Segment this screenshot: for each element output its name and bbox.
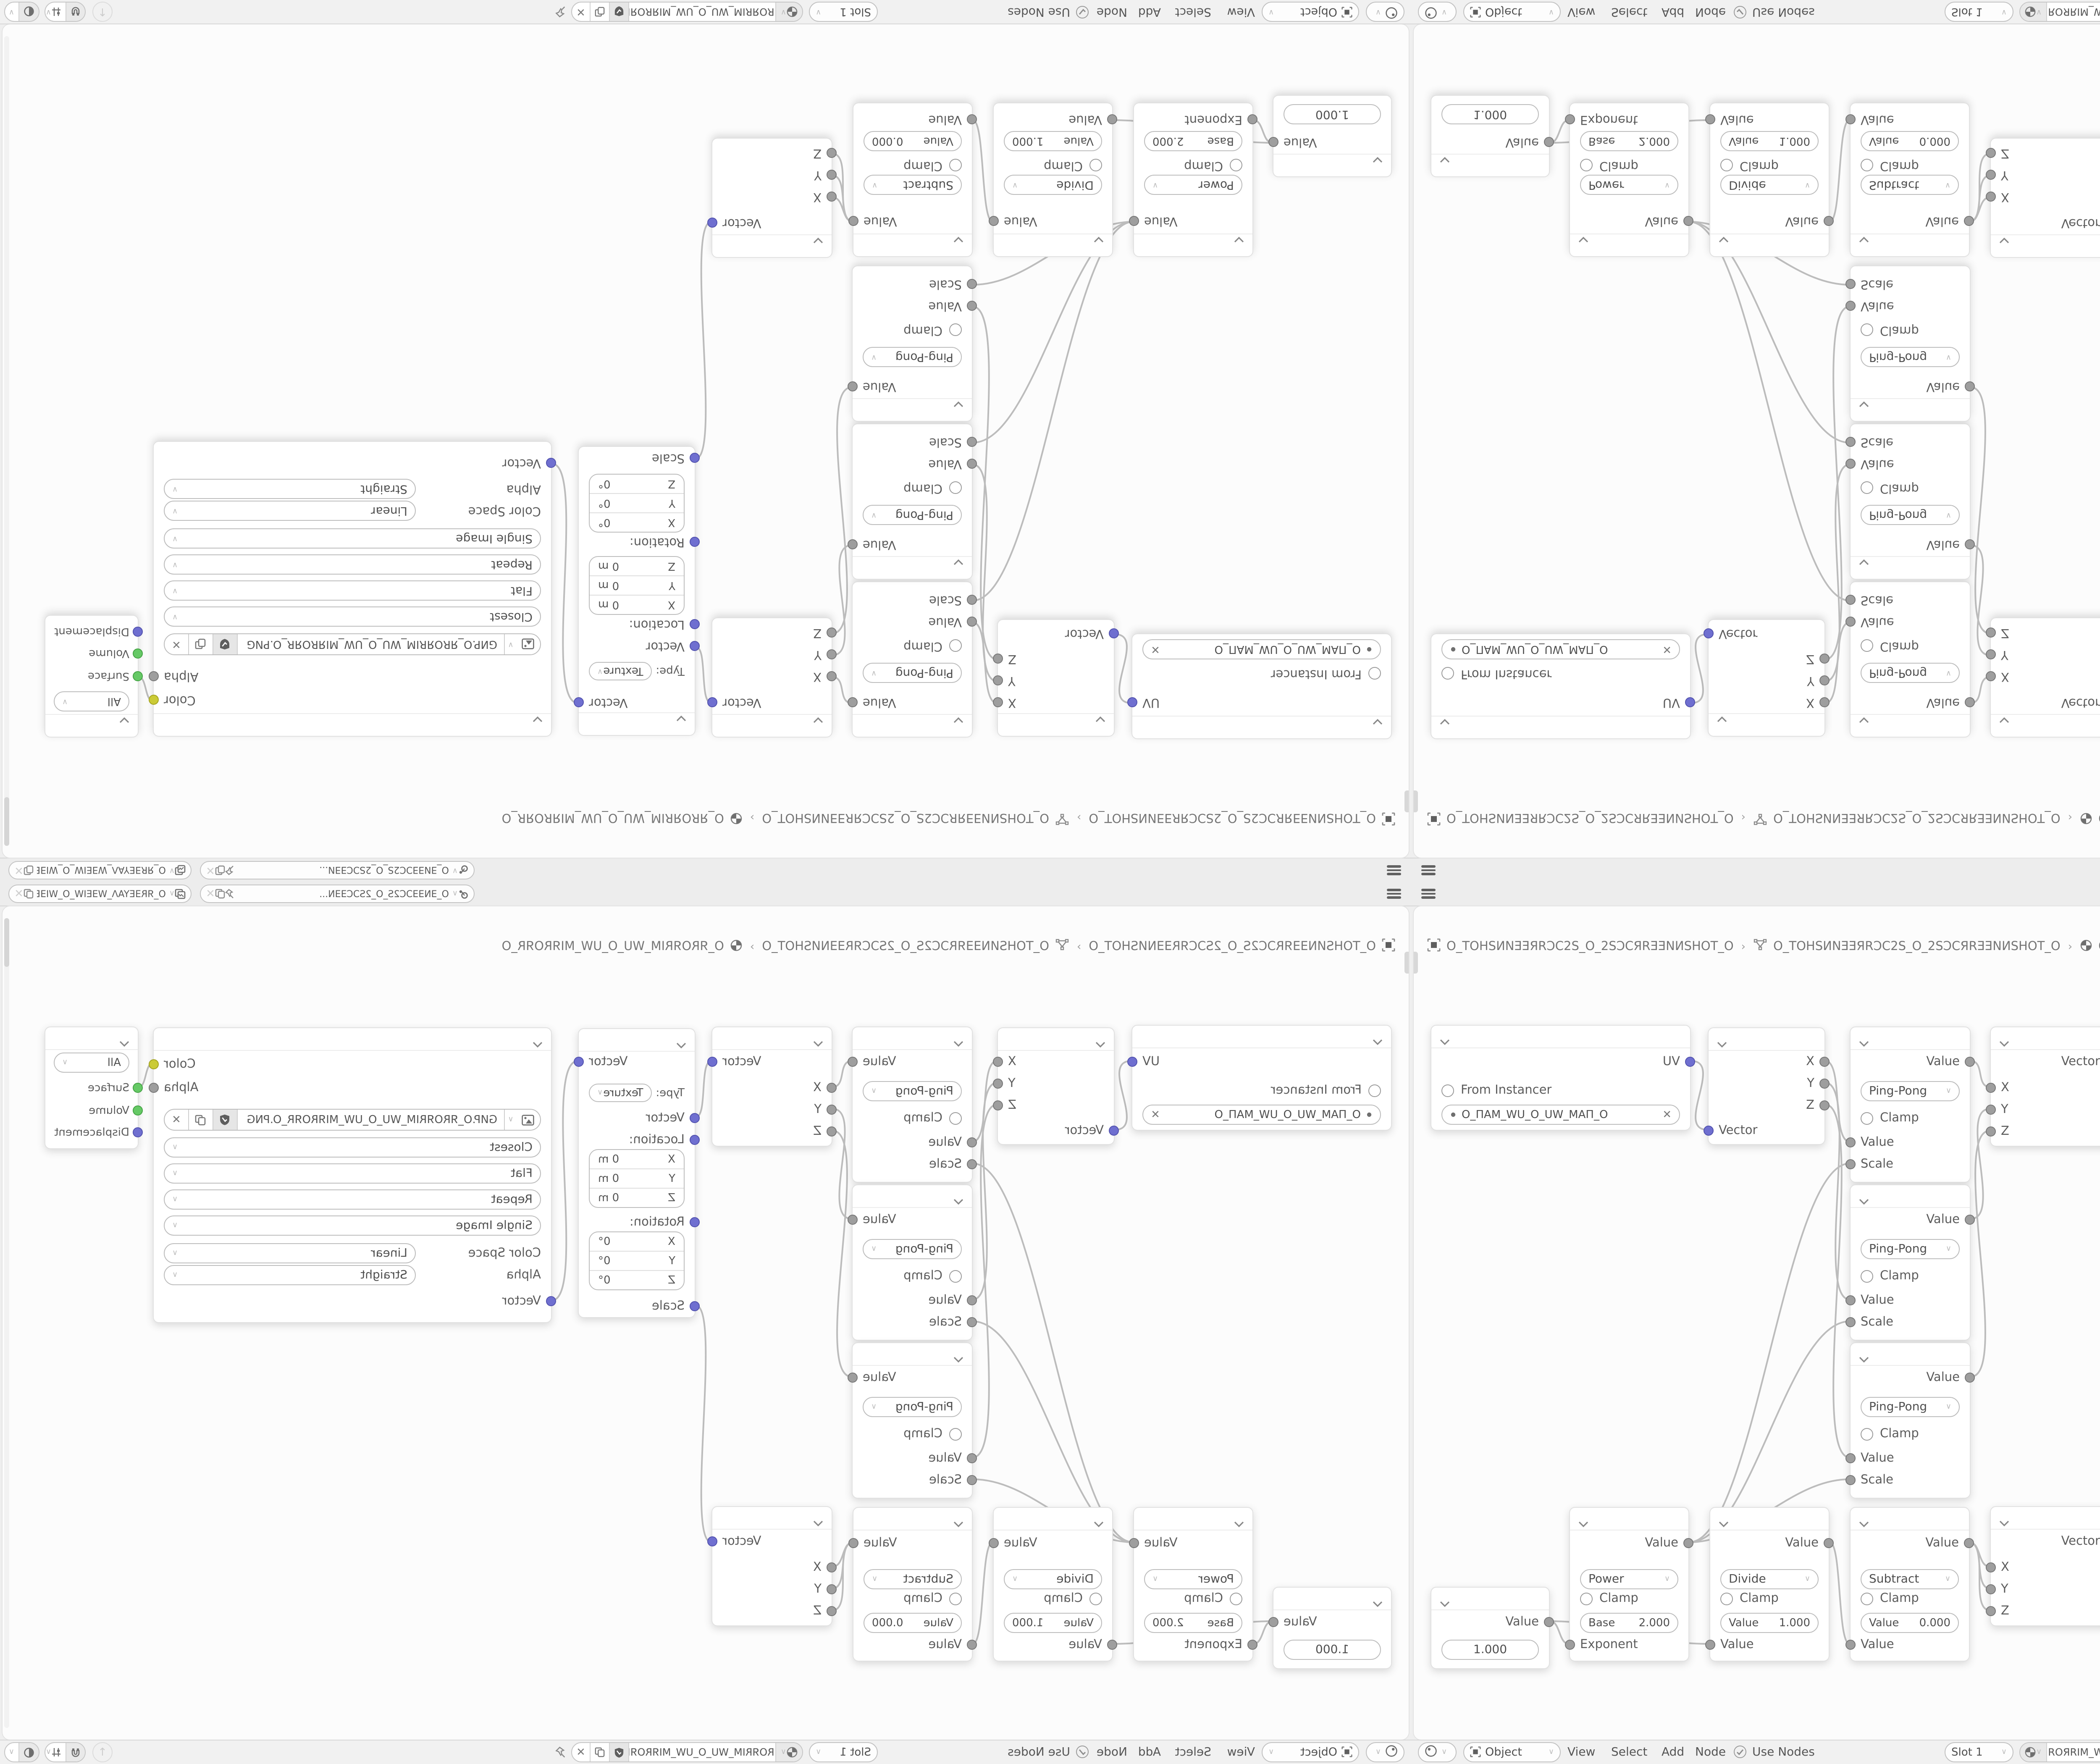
socket-exponent-in[interactable] <box>1247 1640 1257 1650</box>
node-math-power[interactable]: Value Power∨ Clamp Base 2.000 Exponent <box>1133 102 1253 257</box>
close-icon[interactable]: ✕ <box>1151 1108 1160 1121</box>
material-selector[interactable]: ∨ O_ЯROЯRIM_WU_O_UW_MIЯROЯR_O ✕ <box>2019 2 2100 22</box>
collapse-chevron-icon[interactable] <box>1373 1595 1383 1611</box>
socket-scale-in[interactable] <box>967 1475 977 1485</box>
base-field[interactable]: Base 2.000 <box>1580 131 1678 151</box>
node-math-pingpong-1[interactable]: Value Ping-Pong∨ Clamp Value Scale <box>1850 581 1971 738</box>
gizmo-up-arrow-button[interactable]: ↑ <box>92 1742 113 1762</box>
node-combine-xyz-bottom[interactable]: Vector X Y Z <box>1990 1506 2100 1626</box>
view-layer-selector[interactable]: ∨ O_ЯRƎEYAΛ_WƎEIW_O_WIƎEW_ΛAYƎER_O ✕ <box>8 861 192 879</box>
socket-z-out[interactable] <box>1819 1100 1830 1110</box>
socket-exponent-in[interactable] <box>1247 114 1257 124</box>
collapse-chevron-icon[interactable] <box>1440 715 1450 731</box>
node-math-power[interactable]: Value Power∨ Clamp Base 2.000 Exponent <box>1133 1507 1253 1662</box>
socket-y-in[interactable] <box>827 170 837 180</box>
socket-vector-out[interactable] <box>707 1057 717 1067</box>
clamp-checkbox[interactable] <box>1861 482 1873 494</box>
operation-dropdown[interactable]: Divide∨ <box>1004 1569 1102 1589</box>
socket-z-in[interactable] <box>1986 1606 1996 1616</box>
collapse-chevron-icon[interactable] <box>1859 233 1869 249</box>
duplicate-icon[interactable] <box>24 865 34 875</box>
node-math-subtract[interactable]: Value Subtract∨ Clamp Value 0.000 Value <box>853 102 973 257</box>
socket-value-out[interactable] <box>1964 216 1974 226</box>
socket-x-in[interactable] <box>1986 1083 1996 1093</box>
collapse-chevron-icon[interactable] <box>953 1035 963 1051</box>
menu-select[interactable]: Select <box>1175 1746 1211 1759</box>
material-selector[interactable]: ∨ O_ЯROЯRIM_WU_O_UW_MIЯROЯR_O ✕ <box>571 1742 803 1762</box>
socket-displacement-in[interactable] <box>133 627 143 637</box>
editor-type-dropdown[interactable]: ∨ <box>1366 1742 1404 1762</box>
socket-value-out[interactable] <box>848 697 858 707</box>
node-combine-xyz-top[interactable]: Vector X Y Z <box>711 1026 832 1147</box>
socket-vector-in[interactable] <box>546 1296 556 1306</box>
use-nodes-checkbox[interactable] <box>1076 6 1089 18</box>
socket-x-in[interactable] <box>827 1562 837 1572</box>
socket-value-in[interactable] <box>967 1137 977 1147</box>
socket-x-in[interactable] <box>827 192 837 202</box>
node-math-pingpong-3[interactable]: Value Ping-Pong∨ Clamp Value Scale <box>1850 1342 1971 1499</box>
node-value[interactable]: Value 1.000 <box>1273 95 1392 177</box>
node-uv-map[interactable]: UV From Instancer O_ΠAM_WU_O_UW_MAΠ_O ✕ <box>1431 633 1691 739</box>
socket-value-out[interactable] <box>848 1057 858 1067</box>
unlink-icon[interactable]: ✕ <box>206 887 215 900</box>
socket-x-in[interactable] <box>1986 192 1996 202</box>
clamp-checkbox[interactable] <box>1861 640 1873 652</box>
socket-z-in[interactable] <box>827 1606 837 1616</box>
extension-dropdown[interactable]: Repeat∨ <box>164 554 541 575</box>
snap-settings-icon[interactable]: ∨ <box>45 1743 66 1761</box>
collapse-chevron-icon[interactable] <box>1373 1033 1383 1049</box>
menu-icon[interactable] <box>1421 889 1436 899</box>
socket-value-out[interactable] <box>1683 1538 1693 1548</box>
collapse-chevron-icon[interactable] <box>953 713 963 729</box>
menu-select[interactable]: Select <box>1611 5 1647 18</box>
breadcrumb-mesh[interactable]: O_TOHSИNƎƎЯRƆC2S_O_2SƆCЯRƎƎNИSHOT_O <box>1773 811 2061 824</box>
operation-dropdown[interactable]: Ping-Pong∨ <box>1861 1081 1960 1101</box>
node-math-pingpong-3[interactable]: Value Ping-Pong∨ Clamp Value Scale <box>852 265 973 422</box>
socket-vector-in[interactable] <box>1109 628 1119 638</box>
breadcrumb-object[interactable]: O_TOHSИNƎƎЯRƆC2S_O_2SƆCЯRƎƎNИSHOT_O <box>1446 811 1734 824</box>
socket-value-in[interactable] <box>1845 459 1856 469</box>
socket-uv-out[interactable] <box>1127 697 1137 707</box>
from-instancer-checkbox[interactable] <box>1368 1084 1381 1097</box>
breadcrumb-object[interactable]: O_TOHSИNƎƎЯRƆC2S_O_2SƆCЯRƎƎNИSHOT_O <box>1089 811 1376 824</box>
socket-value-in[interactable] <box>1845 1453 1856 1463</box>
socket-value-out[interactable] <box>1129 216 1139 226</box>
socket-vector-out[interactable] <box>707 218 717 228</box>
node-separate-xyz[interactable]: X Y Z Vector <box>997 619 1115 737</box>
node-math-divide[interactable]: Value Divide∨ Clamp Value 1.000 Value <box>1709 1507 1830 1662</box>
value-field[interactable]: Value 0.000 <box>864 131 962 151</box>
node-material-output[interactable]: All∨ Surface Volume Displacement <box>45 1026 139 1149</box>
node-combine-xyz-top[interactable]: Vector X Y Z <box>711 617 832 738</box>
node-math-pingpong-2[interactable]: Value Ping-Pong∨ Clamp Value Scale <box>1850 423 1971 580</box>
unlink-icon[interactable]: ✕ <box>165 1110 189 1130</box>
rotation-fields[interactable]: X0° Y0° Z0° <box>589 474 685 533</box>
socket-value-in[interactable] <box>967 114 977 124</box>
menu-node[interactable]: Node <box>1695 5 1726 18</box>
node-math-pingpong-2[interactable]: Value Ping-Pong∨ Clamp Value Scale <box>1850 1184 1971 1341</box>
area-edge-handle[interactable] <box>1404 790 1409 812</box>
collapse-chevron-icon[interactable] <box>813 1035 823 1051</box>
socket-value-out[interactable] <box>1544 1617 1554 1627</box>
menu-add[interactable]: Add <box>1138 5 1161 18</box>
collapse-chevron-icon[interactable] <box>953 233 963 249</box>
breadcrumb-material[interactable]: O_ЯROЯRIM_WU_O_UW_MIЯROЯR_O <box>2098 940 2100 953</box>
socket-scale-in[interactable] <box>1845 1159 1856 1169</box>
close-icon[interactable]: ✕ <box>1662 1108 1672 1121</box>
socket-y-in[interactable] <box>1986 649 1996 659</box>
clamp-checkbox[interactable] <box>1089 1592 1102 1605</box>
chevron-down-icon[interactable]: ∨ <box>505 634 517 654</box>
socket-rotation-in[interactable] <box>690 1217 700 1227</box>
socket-value-out[interactable] <box>1965 1057 1975 1067</box>
socket-value-out[interactable] <box>1964 1538 1974 1548</box>
chevron-down-icon[interactable]: ∨ <box>5 3 19 21</box>
value-field[interactable]: 1.000 <box>1441 1640 1539 1660</box>
image-icon[interactable] <box>517 634 540 654</box>
socket-x-in[interactable] <box>827 1083 837 1093</box>
base-field[interactable]: Base 2.000 <box>1580 1613 1678 1633</box>
socket-vector-out[interactable] <box>707 697 717 707</box>
use-nodes-checkbox[interactable] <box>1076 1746 1089 1758</box>
socket-vector-in[interactable] <box>1704 628 1714 638</box>
overlays-toggle[interactable]: ∨ <box>4 2 39 22</box>
socket-x-out[interactable] <box>1819 1057 1830 1067</box>
operation-dropdown[interactable]: Ping-Pong∨ <box>863 1081 962 1101</box>
pin-icon[interactable] <box>555 1746 566 1761</box>
collapse-chevron-icon[interactable] <box>1859 1515 1869 1531</box>
unlink-icon[interactable]: ✕ <box>14 864 24 877</box>
socket-value-in[interactable] <box>1845 1640 1856 1650</box>
collapse-chevron-icon[interactable] <box>1373 153 1383 169</box>
breadcrumb-mesh[interactable]: O_TOHSИNƎƎЯRƆC2S_O_2SƆCЯRƎƎNИSHOT_O <box>762 811 1049 824</box>
collapse-chevron-icon[interactable] <box>1859 1035 1869 1051</box>
socket-value-in[interactable] <box>967 301 977 311</box>
operation-dropdown[interactable]: Divide∨ <box>1720 1569 1819 1589</box>
socket-value-in[interactable] <box>1845 1137 1856 1147</box>
color-space-dropdown[interactable]: Linear∨ <box>164 1243 416 1263</box>
uv-map-field[interactable]: O_ΠAM_WU_O_UW_MAΠ_O ✕ <box>1142 1105 1381 1125</box>
editor-type-dropdown[interactable]: ∨ <box>1418 1742 1457 1762</box>
slot-dropdown[interactable]: Slot 1 ∨ <box>809 2 878 22</box>
node-combine-xyz-top[interactable]: Vector X Y Z <box>1990 1026 2100 1147</box>
view-layer-selector[interactable]: ∨ O_ЯRƎEYAΛ_WƎEIW_O_WIƎEW_ΛAYƎER_O ✕ <box>8 885 192 903</box>
duplicate-icon[interactable] <box>215 889 225 899</box>
pin-icon[interactable] <box>555 3 566 18</box>
socket-y-in[interactable] <box>1986 1105 1996 1115</box>
close-icon[interactable]: ✕ <box>1662 643 1672 656</box>
pin-icon[interactable] <box>225 889 234 899</box>
snapping-controls[interactable]: ∨ <box>45 2 86 22</box>
operation-dropdown[interactable]: Power∨ <box>1144 175 1242 195</box>
socket-vector-out[interactable] <box>574 697 584 707</box>
socket-y-in[interactable] <box>827 649 837 659</box>
node-math-pingpong-1[interactable]: Value Ping-Pong∨ Clamp Value Scale <box>852 1026 973 1183</box>
pin-icon[interactable] <box>225 865 234 875</box>
node-canvas[interactable]: O_TOHSИNƎƎЯRƆC2S_O_2SƆCЯRƎƎNИSHOT_O › O_… <box>1413 906 2100 1740</box>
node-math-divide[interactable]: Value Divide∨ Clamp Value 1.000 Value <box>993 102 1113 257</box>
collapse-chevron-icon[interactable] <box>1578 233 1588 249</box>
socket-x-out[interactable] <box>993 1057 1003 1067</box>
socket-value-out[interactable] <box>1965 539 1975 549</box>
duplicate-icon[interactable] <box>189 1110 213 1130</box>
shader-mode-dropdown[interactable]: Object ∨ <box>1463 1742 1561 1762</box>
scrollbar-track[interactable] <box>4 918 9 1728</box>
duplicate-icon[interactable] <box>24 889 34 899</box>
socket-scale-in[interactable] <box>967 279 977 289</box>
node-uv-map[interactable]: UV From Instancer O_ΠAM_WU_O_UW_MAΠ_O ✕ <box>1131 1025 1392 1131</box>
socket-vector-out[interactable] <box>707 1536 717 1546</box>
editor-type-dropdown[interactable]: ∨ <box>1418 2 1457 22</box>
node-math-subtract[interactable]: Value Subtract∨ Clamp Value 0.000 Value <box>1850 102 1970 257</box>
node-math-pingpong-2[interactable]: Value Ping-Pong∨ Clamp Value Scale <box>852 423 973 580</box>
operation-dropdown[interactable]: Ping-Pong∨ <box>863 1397 962 1417</box>
alpha-mode-dropdown[interactable]: Straight∨ <box>164 1265 416 1285</box>
socket-uv-out[interactable] <box>1127 1057 1137 1067</box>
collapse-chevron-icon[interactable] <box>119 1035 129 1051</box>
node-value[interactable]: Value 1.000 <box>1431 95 1550 177</box>
value-field[interactable]: Value 0.000 <box>1861 131 1959 151</box>
node-image-texture[interactable]: Color Alpha ∨ GИP.O_ЯROЯRIM_WU_O_UW_MIЯR… <box>153 441 552 737</box>
operation-dropdown[interactable]: Ping-Pong∨ <box>1861 505 1960 525</box>
collapse-chevron-icon[interactable] <box>1719 1515 1729 1531</box>
socket-uv-out[interactable] <box>1685 1057 1695 1067</box>
operation-dropdown[interactable]: Ping-Pong∨ <box>1861 1397 1960 1417</box>
collapse-chevron-icon[interactable] <box>1234 1515 1244 1531</box>
duplicate-icon[interactable] <box>591 3 610 21</box>
socket-displacement-in[interactable] <box>133 1127 143 1137</box>
socket-y-out[interactable] <box>1819 675 1830 685</box>
socket-vector-in[interactable] <box>690 641 700 651</box>
socket-value-in[interactable] <box>1845 301 1856 311</box>
clamp-checkbox[interactable] <box>949 1428 962 1440</box>
collapse-chevron-icon[interactable] <box>1859 1351 1869 1367</box>
slot-dropdown[interactable]: Slot 1 ∨ <box>809 1742 878 1762</box>
node-separate-xyz[interactable]: X Y Z Vector <box>997 1027 1115 1145</box>
socket-value-in[interactable] <box>967 459 977 469</box>
clamp-checkbox[interactable] <box>949 324 962 336</box>
scrollbar-track[interactable] <box>4 36 9 846</box>
clamp-checkbox[interactable] <box>949 1112 962 1124</box>
socket-value-out[interactable] <box>848 1215 858 1225</box>
collapse-chevron-icon[interactable] <box>953 1193 963 1209</box>
socket-location-in[interactable] <box>690 619 700 629</box>
socket-value-out[interactable] <box>1824 1538 1834 1548</box>
socket-vector-in[interactable] <box>1704 1126 1714 1136</box>
socket-value-out[interactable] <box>848 539 858 549</box>
scrollbar-thumb[interactable] <box>4 918 9 967</box>
collapse-chevron-icon[interactable] <box>676 1037 686 1053</box>
socket-vector-in[interactable] <box>690 1113 700 1123</box>
socket-scale-in[interactable] <box>1845 1317 1856 1327</box>
from-instancer-checkbox[interactable] <box>1368 667 1381 680</box>
socket-value-out[interactable] <box>1129 1538 1139 1548</box>
menu-view[interactable]: View <box>1567 5 1595 18</box>
value-field[interactable]: Value 0.000 <box>1861 1613 1959 1633</box>
operation-dropdown[interactable]: Power∨ <box>1580 1569 1678 1589</box>
collapse-chevron-icon[interactable] <box>1859 397 1869 413</box>
socket-y-out[interactable] <box>993 675 1003 685</box>
socket-value-out[interactable] <box>1965 1373 1975 1383</box>
source-dropdown[interactable]: Single Image∨ <box>164 528 541 549</box>
socket-scale-in[interactable] <box>967 1317 977 1327</box>
source-dropdown[interactable]: Single Image∨ <box>164 1215 541 1236</box>
from-instancer-checkbox[interactable] <box>1441 1084 1454 1097</box>
socket-value-out[interactable] <box>1965 381 1975 391</box>
socket-value-in[interactable] <box>967 1640 977 1650</box>
clamp-checkbox[interactable] <box>949 1270 962 1282</box>
clamp-checkbox[interactable] <box>1230 159 1242 172</box>
socket-vector-out[interactable] <box>574 1057 584 1067</box>
socket-scale-in[interactable] <box>690 1301 700 1311</box>
socket-uv-out[interactable] <box>1685 697 1695 707</box>
node-math-pingpong-3[interactable]: Value Ping-Pong∨ Clamp Value Scale <box>1850 265 1971 422</box>
socket-value-out[interactable] <box>1965 697 1975 707</box>
slot-dropdown[interactable]: Slot 1 ∨ <box>1945 2 2013 22</box>
uv-map-field[interactable]: O_ΠAM_WU_O_UW_MAΠ_O ✕ <box>1441 639 1680 659</box>
operation-dropdown[interactable]: Ping-Pong∨ <box>1861 347 1960 367</box>
socket-x-in[interactable] <box>1986 1562 1996 1572</box>
value-field[interactable]: 1.000 <box>1441 104 1539 124</box>
socket-value-in[interactable] <box>1845 617 1856 627</box>
collapse-chevron-icon[interactable] <box>1999 713 2009 729</box>
alpha-mode-dropdown[interactable]: Straight∨ <box>164 479 416 499</box>
interpolation-dropdown[interactable]: Closest∨ <box>164 1137 541 1158</box>
socket-value-out[interactable] <box>1965 1215 1975 1225</box>
clamp-checkbox[interactable] <box>1580 159 1593 172</box>
editor-type-dropdown[interactable]: ∨ <box>1366 2 1404 22</box>
collapse-chevron-icon[interactable] <box>1717 1036 1727 1052</box>
base-field[interactable]: Base 2.000 <box>1144 131 1242 151</box>
operation-dropdown[interactable]: Divide∨ <box>1720 175 1819 195</box>
collapse-chevron-icon[interactable] <box>1094 233 1104 249</box>
collapse-chevron-icon[interactable] <box>953 397 963 413</box>
operation-dropdown[interactable]: Ping-Pong∨ <box>863 1239 962 1259</box>
collapse-chevron-icon[interactable] <box>1095 1036 1105 1052</box>
uv-map-field[interactable]: O_ΠAM_WU_O_UW_MAΠ_O ✕ <box>1142 639 1381 659</box>
operation-dropdown[interactable]: Subtract∨ <box>864 1569 962 1589</box>
use-nodes-checkbox[interactable] <box>1734 6 1746 18</box>
color-space-dropdown[interactable]: Linear∨ <box>164 501 416 521</box>
fake-user-shield-icon[interactable] <box>213 634 238 654</box>
scene-selector[interactable]: ∨ O_ƎNƎƎƆC2S_O_2SƆCƎƎN... ✕ <box>200 885 475 903</box>
socket-value-in[interactable] <box>1705 1640 1715 1650</box>
socket-z-in[interactable] <box>1986 627 1996 638</box>
collapse-chevron-icon[interactable] <box>1578 1515 1588 1531</box>
socket-value-in[interactable] <box>1107 1640 1117 1650</box>
collapse-chevron-icon[interactable] <box>813 713 823 729</box>
area-edge-handle[interactable] <box>1414 790 1418 812</box>
operation-dropdown[interactable]: Power∨ <box>1580 175 1678 195</box>
type-dropdown[interactable]: Texture∨ <box>589 662 652 680</box>
socket-value-out[interactable] <box>848 216 858 226</box>
socket-y-in[interactable] <box>827 1105 837 1115</box>
operation-dropdown[interactable]: Ping-Pong∨ <box>1861 1239 1960 1259</box>
collapse-chevron-icon[interactable] <box>1859 713 1869 729</box>
collapse-chevron-icon[interactable] <box>119 713 129 729</box>
node-combine-xyz-top[interactable]: Vector X Y Z <box>1990 617 2100 738</box>
socket-value-out[interactable] <box>1544 137 1554 147</box>
node-separate-xyz[interactable]: X Y Z Vector <box>1708 1027 1825 1145</box>
target-dropdown[interactable]: All∨ <box>54 1053 129 1073</box>
fake-user-shield-icon[interactable] <box>213 1110 238 1130</box>
socket-exponent-in[interactable] <box>1565 114 1575 124</box>
collapse-chevron-icon[interactable] <box>1717 712 1727 728</box>
breadcrumb-object[interactable]: O_TOHSИNƎƎЯRƆC2S_O_2SƆCЯRƎƎNИSHOT_O <box>1089 940 1376 953</box>
socket-z-out[interactable] <box>993 654 1003 664</box>
socket-scale-in[interactable] <box>967 437 977 447</box>
socket-z-in[interactable] <box>827 148 837 158</box>
socket-x-out[interactable] <box>1819 697 1830 707</box>
collapse-chevron-icon[interactable] <box>953 555 963 571</box>
collapse-chevron-icon[interactable] <box>533 712 543 728</box>
duplicate-icon[interactable] <box>591 1743 610 1761</box>
node-combine-xyz-bottom[interactable]: Vector X Y Z <box>711 1506 832 1626</box>
unlink-icon[interactable]: ✕ <box>572 3 591 21</box>
socket-value-out[interactable] <box>1683 216 1693 226</box>
unlink-icon[interactable]: ✕ <box>206 864 215 877</box>
socket-color-out[interactable] <box>149 1059 159 1069</box>
socket-surface-in[interactable] <box>133 671 143 681</box>
clamp-checkbox[interactable] <box>949 1592 962 1605</box>
socket-scale-in[interactable] <box>967 1159 977 1169</box>
clamp-checkbox[interactable] <box>949 159 962 172</box>
collapse-chevron-icon[interactable] <box>813 234 823 249</box>
value-field[interactable]: Value 0.000 <box>864 1613 962 1633</box>
menu-add[interactable]: Add <box>1662 5 1684 18</box>
breadcrumb-material[interactable]: O_ЯROЯRIM_WU_O_UW_MIЯROЯR_O <box>2098 811 2100 824</box>
menu-select[interactable]: Select <box>1175 5 1211 18</box>
socket-value-out[interactable] <box>1268 1617 1278 1627</box>
value-field[interactable]: Value 1.000 <box>1720 1613 1819 1633</box>
value-field[interactable]: Value 1.000 <box>1720 131 1819 151</box>
node-math-pingpong-1[interactable]: Value Ping-Pong∨ Clamp Value Scale <box>852 581 973 738</box>
clamp-checkbox[interactable] <box>949 482 962 494</box>
clamp-checkbox[interactable] <box>1720 159 1733 172</box>
close-icon[interactable]: ✕ <box>1151 643 1160 656</box>
operation-dropdown[interactable]: Ping-Pong∨ <box>863 505 962 525</box>
area-edge-handle[interactable] <box>1414 952 1418 974</box>
clamp-checkbox[interactable] <box>949 640 962 652</box>
socket-value-in[interactable] <box>967 617 977 627</box>
unlink-icon[interactable]: ✕ <box>14 887 24 900</box>
collapse-chevron-icon[interactable] <box>1999 1515 2009 1530</box>
socket-z-in[interactable] <box>827 1126 837 1137</box>
socket-surface-in[interactable] <box>133 1083 143 1093</box>
socket-alpha-out[interactable] <box>149 671 159 681</box>
socket-vector-in[interactable] <box>1109 1126 1119 1136</box>
socket-value-in[interactable] <box>967 1295 977 1305</box>
slot-dropdown[interactable]: Slot 1 ∨ <box>1945 1742 2013 1762</box>
node-value[interactable]: Value 1.000 <box>1431 1587 1550 1669</box>
gizmo-up-arrow-button[interactable]: ↑ <box>92 2 113 22</box>
socket-x-out[interactable] <box>993 697 1003 707</box>
socket-value-out[interactable] <box>989 1538 999 1548</box>
collapse-chevron-icon[interactable] <box>1234 233 1244 249</box>
breadcrumb-object[interactable]: O_TOHSИNƎƎЯRƆC2S_O_2SƆCЯRƎƎNИSHOT_O <box>1446 940 1734 953</box>
interpolation-dropdown[interactable]: Closest∨ <box>164 606 541 627</box>
collapse-chevron-icon[interactable] <box>953 1351 963 1367</box>
collapse-chevron-icon[interactable] <box>1094 1515 1104 1531</box>
value-field[interactable]: Value 1.000 <box>1004 131 1102 151</box>
magnet-icon[interactable] <box>66 1743 85 1761</box>
base-field[interactable]: Base 2.000 <box>1144 1613 1242 1633</box>
node-math-divide[interactable]: Value Divide∨ Clamp Value 1.000 Value <box>993 1507 1113 1662</box>
clamp-checkbox[interactable] <box>1230 1592 1242 1605</box>
collapse-chevron-icon[interactable] <box>1999 234 2009 249</box>
collapse-chevron-icon[interactable] <box>1440 153 1450 169</box>
